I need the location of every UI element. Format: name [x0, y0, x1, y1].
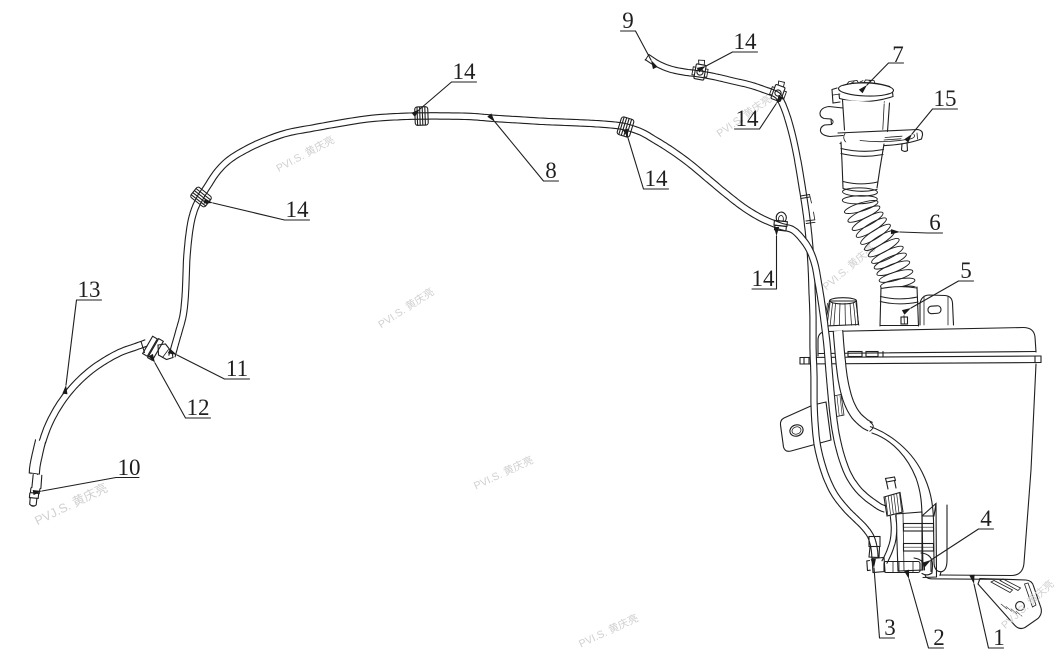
svg-text:1: 1	[993, 625, 1005, 649]
svg-text:5: 5	[960, 258, 972, 283]
svg-text:13: 13	[78, 277, 101, 302]
svg-text:4: 4	[980, 506, 992, 531]
svg-text:15: 15	[934, 86, 957, 111]
svg-text:3: 3	[884, 615, 896, 640]
svg-text:14: 14	[453, 59, 477, 84]
svg-text:11: 11	[226, 356, 248, 381]
svg-text:14: 14	[286, 197, 310, 222]
svg-text:2: 2	[933, 625, 945, 649]
svg-text:14: 14	[752, 266, 776, 291]
svg-text:9: 9	[622, 8, 634, 33]
svg-text:8: 8	[545, 158, 557, 183]
svg-text:10: 10	[118, 455, 141, 480]
svg-text:14: 14	[734, 29, 758, 54]
svg-text:12: 12	[187, 395, 210, 420]
svg-text:6: 6	[929, 210, 941, 235]
svg-text:14: 14	[736, 106, 760, 131]
svg-text:14: 14	[645, 166, 669, 191]
